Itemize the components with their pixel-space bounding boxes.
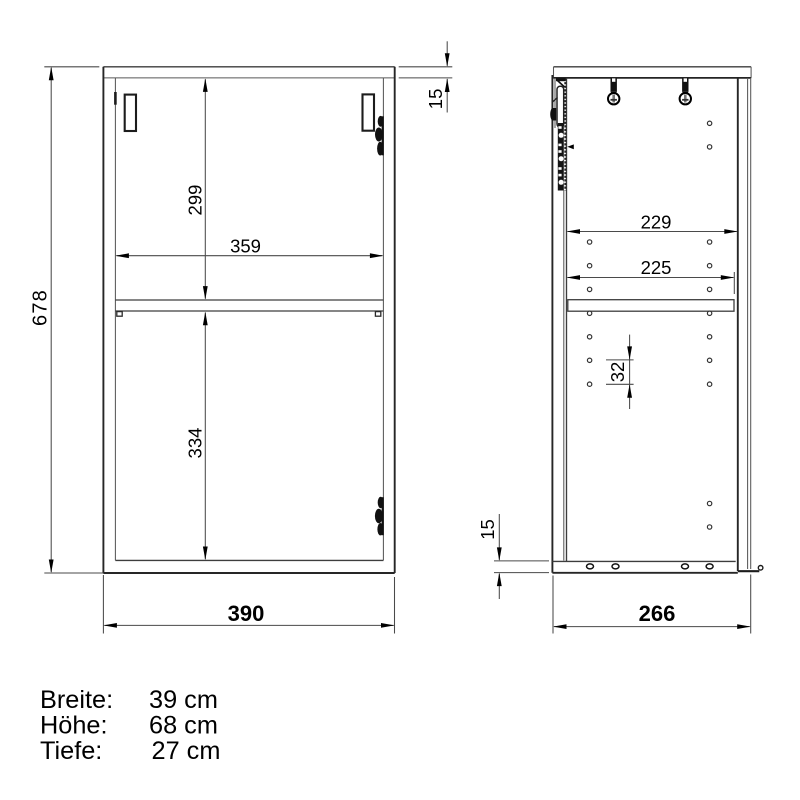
svg-text:39 cm: 39 cm: [149, 686, 218, 714]
svg-text:32: 32: [607, 362, 628, 383]
svg-text:225: 225: [641, 257, 672, 278]
svg-text:299: 299: [185, 185, 206, 216]
svg-text:Tiefe:: Tiefe:: [40, 737, 102, 765]
svg-text:15: 15: [425, 89, 446, 110]
svg-text:678: 678: [29, 289, 51, 326]
svg-text:266: 266: [639, 601, 676, 626]
svg-text:27 cm: 27 cm: [152, 737, 221, 765]
svg-text:15: 15: [477, 519, 498, 540]
svg-text:68 cm: 68 cm: [149, 712, 218, 740]
svg-text:390: 390: [228, 601, 265, 626]
svg-text:359: 359: [230, 235, 261, 256]
svg-text:334: 334: [185, 428, 206, 459]
svg-text:Höhe:: Höhe:: [40, 712, 108, 740]
svg-text:229: 229: [641, 212, 672, 233]
svg-text:Breite:: Breite:: [40, 686, 113, 714]
